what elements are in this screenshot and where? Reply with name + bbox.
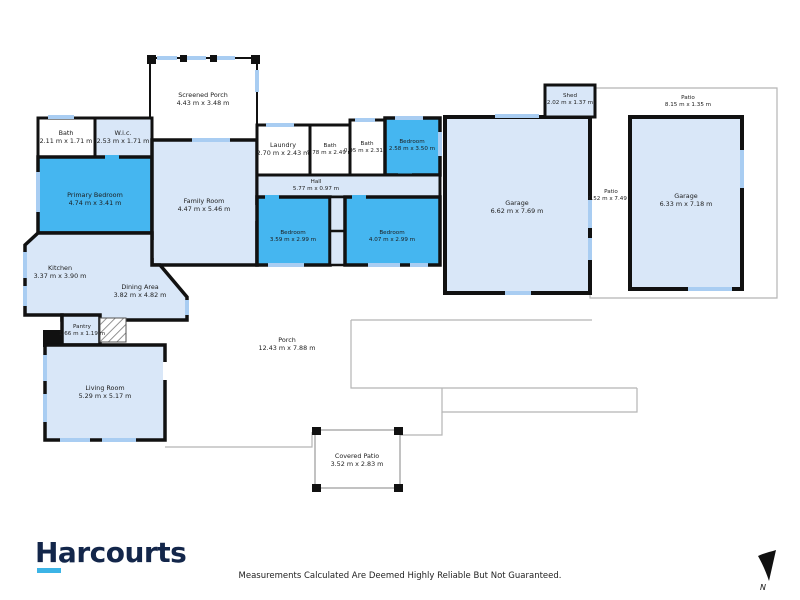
window <box>48 115 74 119</box>
room-label: Dining Area <box>121 283 158 291</box>
patio-post <box>394 484 403 492</box>
door-gap <box>105 155 119 160</box>
room-family-room: Family Room 4.47 m x 5.46 m <box>150 138 260 265</box>
window <box>23 286 27 306</box>
room-covered-patio: Covered Patio 3.52 m x 2.83 m <box>312 427 403 492</box>
room-dims: 5.29 m x 5.17 m <box>79 392 132 400</box>
room-dims: 6.33 m x 7.18 m <box>660 200 713 208</box>
room-label: Covered Patio <box>335 452 379 460</box>
patio-post <box>312 427 321 435</box>
room-dims: 4.43 m x 3.48 m <box>177 99 230 107</box>
porch-post <box>210 55 217 62</box>
room-label: Hall <box>311 179 322 185</box>
window <box>266 123 294 127</box>
room-dims: 4.74 m x 3.41 m <box>69 199 122 207</box>
room-dims: 0.95 m x 2.31 m <box>344 148 390 154</box>
window <box>23 252 27 278</box>
room-label: Patio <box>681 95 695 101</box>
north-label: N <box>760 583 766 592</box>
door-gap <box>163 362 168 380</box>
window <box>505 291 531 295</box>
window <box>495 114 539 118</box>
room-label: W.i.c. <box>115 129 132 137</box>
room-label: Bath <box>59 129 74 137</box>
porch-line-step1 <box>351 320 637 388</box>
window <box>36 172 40 212</box>
room-dims: 2.11 m x 1.71 m <box>40 137 93 145</box>
window <box>43 394 47 422</box>
room-label: Bedroom <box>399 139 424 145</box>
room-garage-left: Garage 6.62 m x 7.69 m <box>445 114 592 295</box>
room-dims: 1.52 m x 7.49 m <box>588 196 634 202</box>
room-dims: 2.70 m x 2.43 m <box>257 149 310 157</box>
room-bedroom-right: Bedroom 4.07 m x 2.99 m <box>345 195 440 267</box>
room-label: Bath <box>360 141 373 147</box>
window <box>186 56 206 60</box>
window <box>185 300 189 315</box>
room-bath-1: Bath 2.11 m x 1.71 m <box>38 115 95 157</box>
porch-line-step3 <box>400 412 442 435</box>
room-label: Shed <box>563 93 578 99</box>
room-label: Porch <box>278 336 296 344</box>
porch-line-bottom <box>165 432 312 447</box>
room-dims: 3.59 m x 2.99 m <box>270 237 316 243</box>
room-laundry: Laundry 2.70 m x 2.43 m <box>257 123 310 178</box>
room-dims: 4.47 m x 5.46 m <box>178 205 231 213</box>
room-label: Garage <box>674 192 697 200</box>
room-label: Screened Porch <box>178 91 228 99</box>
room-garage-right: Garage 6.33 m x 7.18 m <box>630 117 744 291</box>
window <box>688 287 732 291</box>
room-living-room: Living Room 5.29 m x 5.17 m <box>43 345 168 442</box>
window <box>102 438 136 442</box>
window <box>268 263 304 267</box>
floorplan-page: Screened Porch 4.43 m x 3.48 m Bath 2.11… <box>0 0 800 600</box>
window <box>157 56 177 60</box>
room-shed: Shed 2.02 m x 1.37 m <box>545 85 595 117</box>
room-label: Living Room <box>85 384 124 392</box>
room-label: Laundry <box>270 141 296 149</box>
room-dims: 2.58 m x 3.50 m <box>389 146 435 152</box>
window <box>255 70 259 92</box>
window <box>588 238 592 260</box>
room-dims: 3.37 m x 3.90 m <box>34 272 87 280</box>
room-dims: 12.43 m x 7.88 m <box>259 344 316 352</box>
room-label: Kitchen <box>48 264 72 272</box>
window <box>410 263 428 267</box>
room-dims: 2.02 m x 1.37 m <box>547 100 593 106</box>
window <box>355 118 375 122</box>
room-label: Family Room <box>184 197 225 205</box>
room-dims: 3.82 m x 4.82 m <box>114 291 167 299</box>
window <box>192 138 230 142</box>
patio-post <box>394 427 403 435</box>
porch-post <box>147 55 156 64</box>
fireplace-hatch <box>100 318 126 342</box>
porch-post <box>251 55 260 64</box>
floorplan-canvas: Screened Porch 4.43 m x 3.48 m Bath 2.11… <box>0 0 800 600</box>
disclaimer-text: Measurements Calculated Are Deemed Highl… <box>0 571 800 581</box>
room-label: Bedroom <box>280 230 305 236</box>
room-primary-bedroom: Primary Bedroom 4.74 m x 3.41 m <box>36 155 152 233</box>
room-wic: W.i.c. 2.53 m x 1.71 m <box>95 118 152 157</box>
room-porch: Porch 12.43 m x 7.88 m <box>259 336 316 352</box>
porch-post <box>180 55 187 62</box>
room-label: Bath <box>323 143 336 149</box>
room-label: Patio <box>604 189 618 195</box>
door-gap <box>265 195 279 200</box>
room-dims: 6.62 m x 7.69 m <box>491 207 544 215</box>
room-label: Garage <box>505 199 528 207</box>
pantry-floor <box>62 315 100 345</box>
room-dims: 5.77 m x 0.97 m <box>293 186 339 192</box>
room-screened-porch: Screened Porch 4.43 m x 3.48 m <box>147 55 260 143</box>
room-dims: 1.66 m x 1.19 m <box>59 331 105 337</box>
room-label: Pantry <box>73 324 92 330</box>
window <box>740 150 744 188</box>
room-bedroom-top: Bedroom 2.58 m x 3.50 m <box>385 116 442 178</box>
room-label: Primary Bedroom <box>67 191 123 199</box>
room-dims: 4.07 m x 2.99 m <box>369 237 415 243</box>
window <box>215 56 235 60</box>
room-hall: Hall 5.77 m x 0.97 m <box>257 175 440 197</box>
harcourts-logo: Harcourts <box>35 536 186 569</box>
window <box>43 355 47 381</box>
room-label: Bedroom <box>379 230 404 236</box>
window <box>60 438 90 442</box>
window <box>588 200 592 228</box>
door-gap <box>352 195 366 200</box>
window <box>368 263 400 267</box>
window <box>438 132 442 156</box>
room-dims: 2.53 m x 1.71 m <box>97 137 150 145</box>
room-pantry: Pantry 1.66 m x 1.19 m <box>43 315 126 347</box>
room-bedroom-left: Bedroom 3.59 m x 2.99 m <box>257 195 330 267</box>
patio-post <box>312 484 321 492</box>
hall-floor <box>257 175 440 197</box>
room-dims: 8.15 m x 1.35 m <box>665 102 711 108</box>
room-dims: 3.52 m x 2.83 m <box>331 460 384 468</box>
porch-line-step2 <box>442 388 637 412</box>
room-bath-3: Bath 0.95 m x 2.31 m <box>344 118 390 178</box>
window <box>395 116 423 120</box>
